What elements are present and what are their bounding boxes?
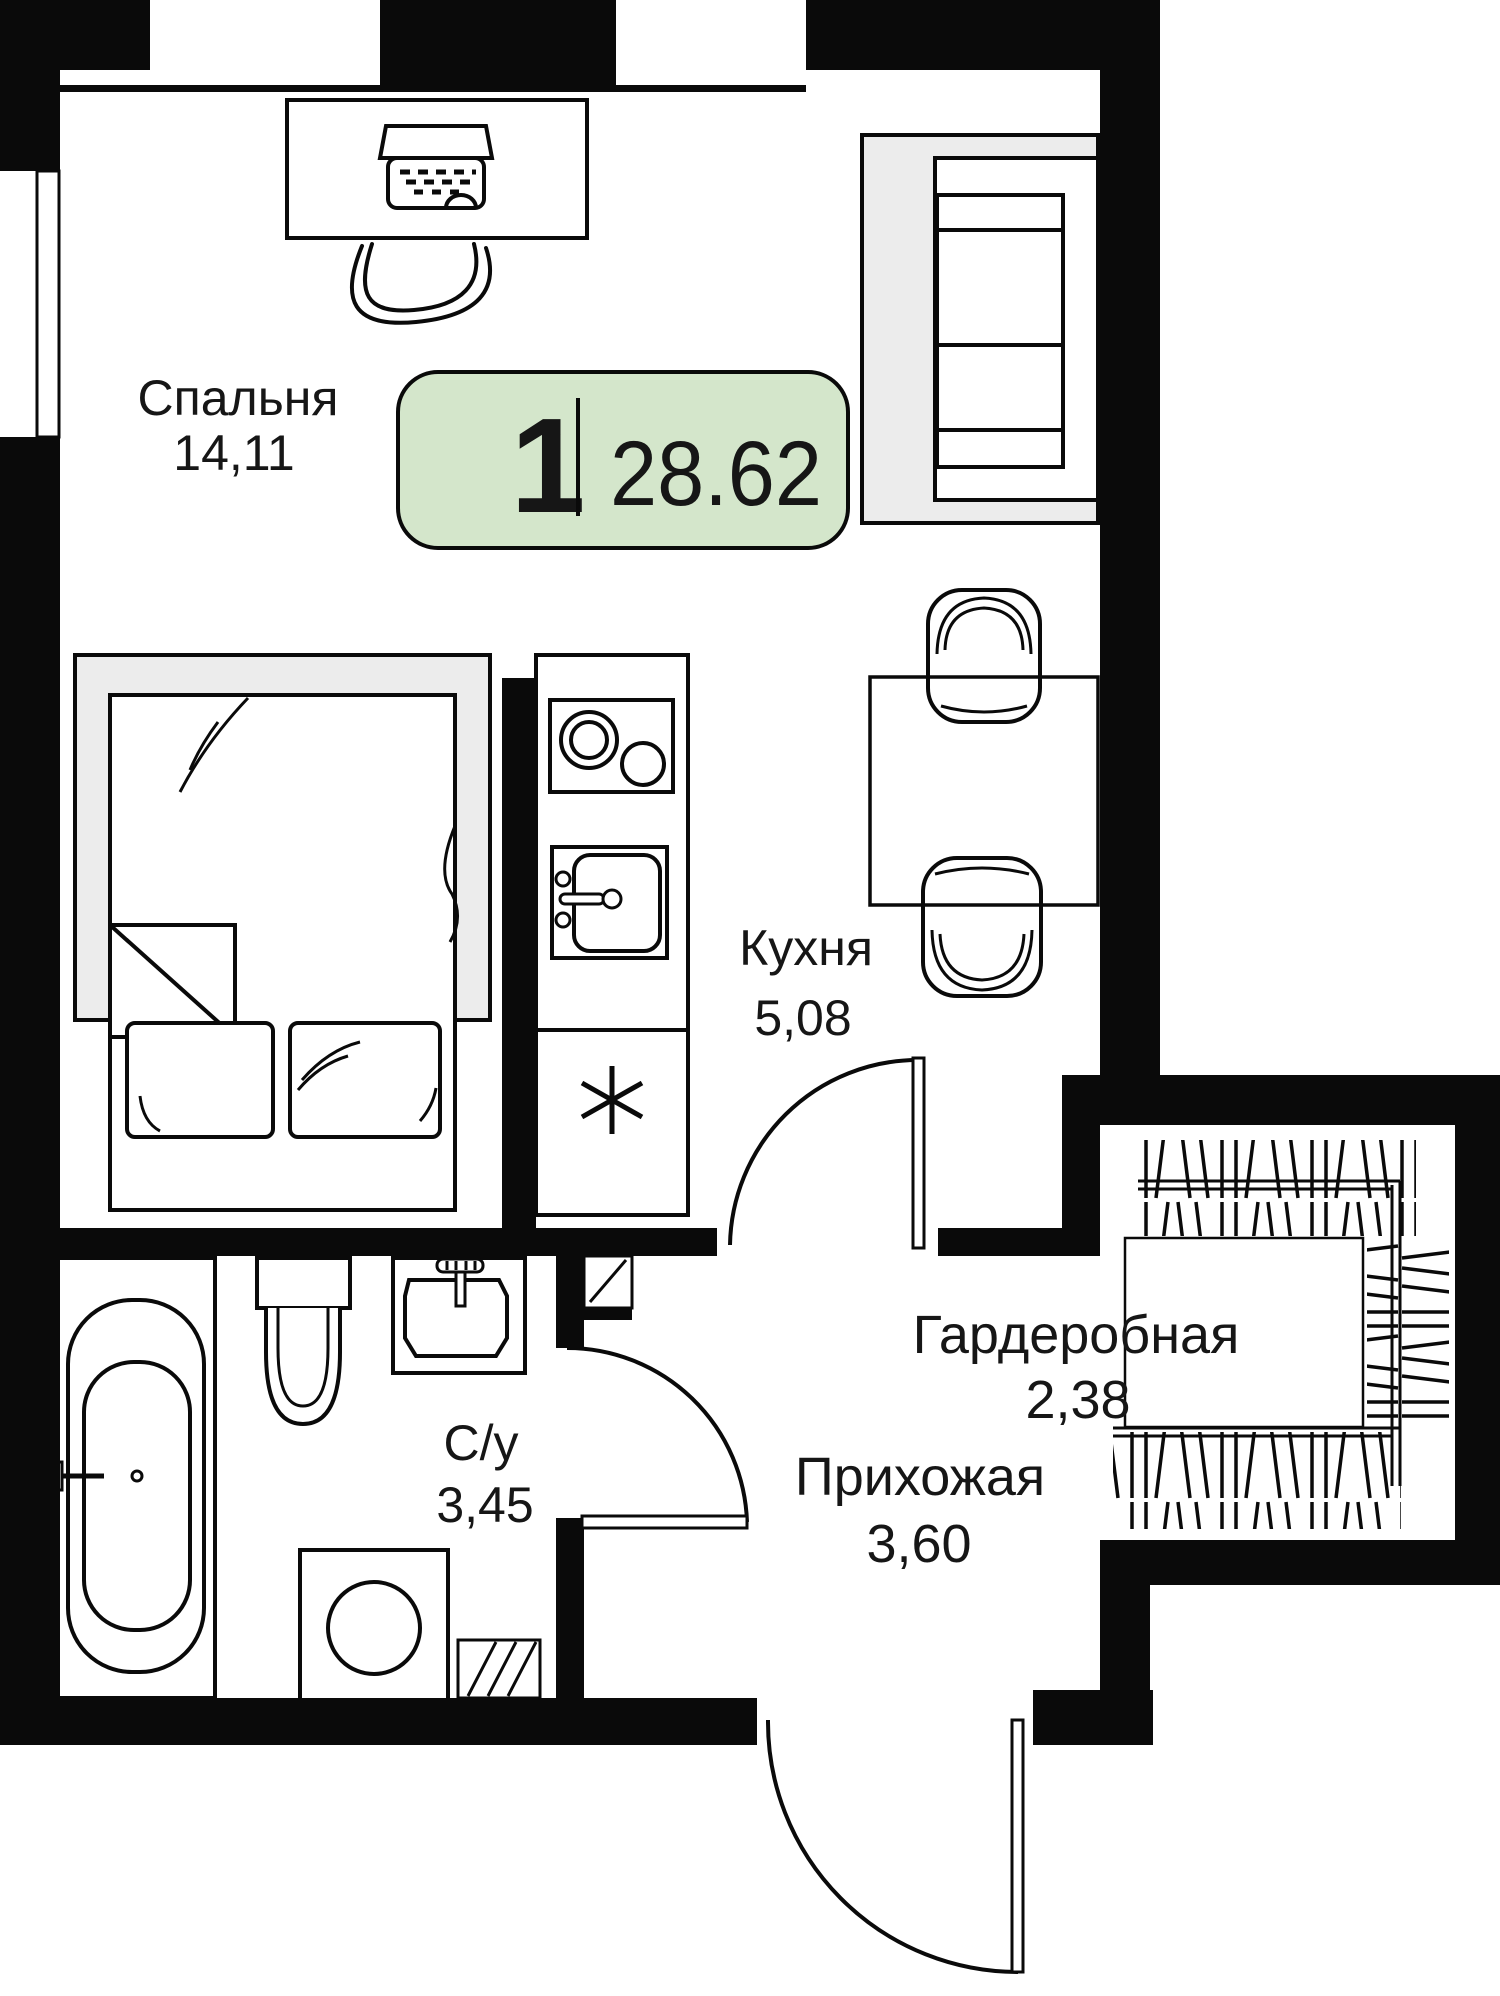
window-sill [60,85,384,92]
bathroom-sink [393,1258,525,1373]
desk [287,100,587,238]
laptop-icon [380,126,492,208]
room-name: Прихожая [795,1447,1045,1507]
apartment-badge: 1 28.62 [398,372,848,548]
floor-plan-svg: 1 28.62 Спальня 14,11 Кухня 5,08 С/у 3,4… [0,0,1500,1996]
room-name: Спальня [138,370,339,426]
room-area: 2,38 [1025,1370,1130,1430]
room-name: Гардеробная [913,1305,1240,1365]
pillow [127,1023,273,1137]
blanket-fold [110,925,235,1037]
window-sill [616,85,806,92]
room-name: С/у [444,1415,519,1471]
shaft-hatch [458,1640,540,1698]
duct-hatch [584,1256,632,1320]
room-area: 3,45 [436,1477,533,1533]
sofa [862,135,1098,523]
fridge-spot [536,1030,688,1215]
badge-total-area: 28.62 [610,423,822,525]
bed [75,655,490,1210]
washing-machine [300,1550,448,1705]
room-name: Кухня [739,920,873,976]
room-area: 5,08 [754,990,851,1046]
room-area: 14,11 [173,425,294,481]
pillow [290,1023,440,1137]
bathtub [46,1258,215,1698]
room-area: 3,60 [866,1514,971,1574]
kitchen-sink [552,847,667,958]
stove [550,700,673,792]
badge-rooms-count: 1 [510,390,585,541]
window [37,171,59,437]
floorplan-canvas: 1 28.62 Спальня 14,11 Кухня 5,08 С/у 3,4… [0,0,1500,1996]
